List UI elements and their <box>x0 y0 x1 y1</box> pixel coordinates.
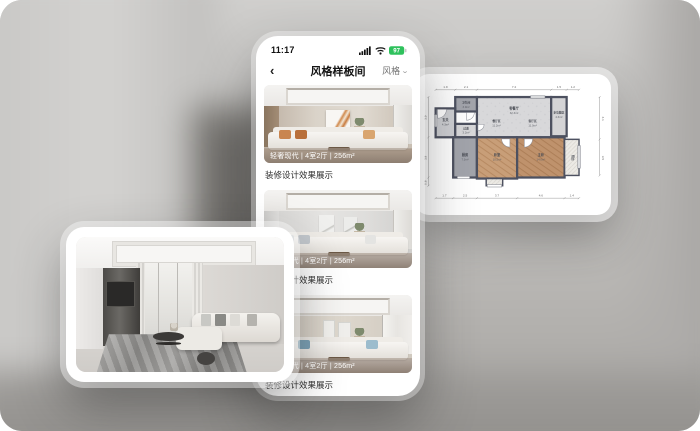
decor-shape <box>158 263 159 344</box>
listing-description: 装修设计效果展示 <box>264 163 412 187</box>
decor-shape: 卧室 <box>494 152 501 157</box>
decor-shape: 32.3m² <box>510 111 519 115</box>
decor-shape: 3.2m² <box>463 131 470 135</box>
decor-shape: 客餐厅 <box>508 105 519 110</box>
chevron-down-icon: ⌄ <box>401 67 409 75</box>
decor-shape <box>215 314 225 326</box>
decor-shape <box>323 320 335 339</box>
decor-shape: 3.9 <box>423 155 427 160</box>
battery-percent: 97 <box>393 48 400 54</box>
decor-shape <box>286 298 390 315</box>
decor-shape: 1.5 <box>557 85 562 89</box>
decor-shape: 11.2m² <box>492 123 500 127</box>
decor-shape <box>298 340 310 349</box>
decor-shape: 10.5m² <box>493 157 502 161</box>
decor-shape <box>457 176 469 178</box>
decor-shape: 3.9 <box>423 115 427 120</box>
decor-shape: 1.4 <box>570 193 575 197</box>
decor-shape: 主卧 <box>538 152 545 157</box>
listing-photo: 轻奢现代 | 4室2厅 | 256m² <box>264 85 412 163</box>
decor-shape: 7.3m² <box>461 157 468 161</box>
style-filter-dropdown[interactable]: 风格 ⌄ <box>382 64 408 77</box>
decor-shape: 7.2 <box>512 85 517 89</box>
decor-shape <box>176 327 222 350</box>
decor-shape <box>487 185 501 187</box>
decor-shape <box>286 193 390 210</box>
floorplan-drawing: 卫生间 3.9m² 玄关 4.3m² 过道 3.2m² 客餐厅 32.3m² 餐… <box>415 74 611 215</box>
decor-shape <box>298 235 310 244</box>
decor-shape <box>153 332 184 341</box>
decor-shape: 餐厅区 <box>491 119 501 123</box>
decor-shape: 4.1 <box>601 117 605 122</box>
decor-shape: 4.6 <box>539 193 544 197</box>
status-bar: 11:17 97 <box>256 36 420 55</box>
decor-shape <box>363 130 375 139</box>
filter-label: 风格 <box>382 64 400 77</box>
decor-shape: 11.0m² <box>528 123 536 127</box>
decor-shape: 2.1 <box>464 85 469 89</box>
decor-shape <box>295 130 307 139</box>
app-header: ‹ 风格样板间 风格 ⌄ <box>256 55 420 82</box>
listing-card[interactable]: 轻奢现代 | 4室2厅 | 256m² 装修设计效果展示 <box>264 85 412 187</box>
decor-shape <box>230 314 240 326</box>
decor-shape: 阳台 <box>571 155 575 161</box>
living-room-photo-card <box>66 227 294 382</box>
decor-shape: 1.9 <box>443 85 448 89</box>
decor-shape <box>614 0 700 431</box>
decor-shape <box>279 130 291 139</box>
decor-shape <box>201 314 211 326</box>
room-living-dining <box>477 97 551 137</box>
decor-shape <box>365 235 377 244</box>
decor-shape: 4.3m² <box>555 115 562 119</box>
signal-icon <box>359 46 372 55</box>
decor-shape: 多功能区 <box>553 111 564 115</box>
decor-shape <box>286 88 390 105</box>
decor-shape: 4.3m² <box>442 122 449 126</box>
decor-shape <box>366 340 378 349</box>
decor-shape: 3.7 <box>495 193 500 197</box>
living-room-photo <box>76 237 284 372</box>
screenshot-canvas: 卫生间 3.9m² 玄关 4.3m² 过道 3.2m² 客餐厅 32.3m² 餐… <box>0 0 700 431</box>
decor-shape <box>107 282 134 306</box>
battery-icon: 97 <box>389 46 407 55</box>
decor-shape: 客厅区 <box>527 119 537 123</box>
decor-shape <box>247 314 257 326</box>
floorplan-card: 卫生间 3.9m² 玄关 4.3m² 过道 3.2m² 客餐厅 32.3m² 餐… <box>415 74 611 215</box>
wifi-icon <box>375 46 386 55</box>
decor-shape: 厨房 <box>462 152 468 157</box>
decor-shape: 1.7 <box>442 193 447 197</box>
decor-shape: 0.8 <box>423 180 427 185</box>
decor-shape: 2.5 <box>463 193 468 197</box>
listing-tag-text: 轻奢现代 | 4室2厅 | 256m² <box>270 151 355 161</box>
decor-shape <box>76 268 103 349</box>
decor-shape <box>170 323 178 331</box>
decor-shape: 14.0m² <box>537 157 546 161</box>
decor-shape <box>467 113 475 121</box>
decor-shape: 3.5 <box>601 156 605 161</box>
decor-shape: 1.2 <box>571 85 576 89</box>
decor-shape: 3.9m² <box>463 105 470 109</box>
decor-shape: 玄关 <box>442 117 449 122</box>
listing-tag: 轻奢现代 | 4室2厅 | 256m² <box>264 148 412 163</box>
status-time: 11:17 <box>271 45 295 55</box>
